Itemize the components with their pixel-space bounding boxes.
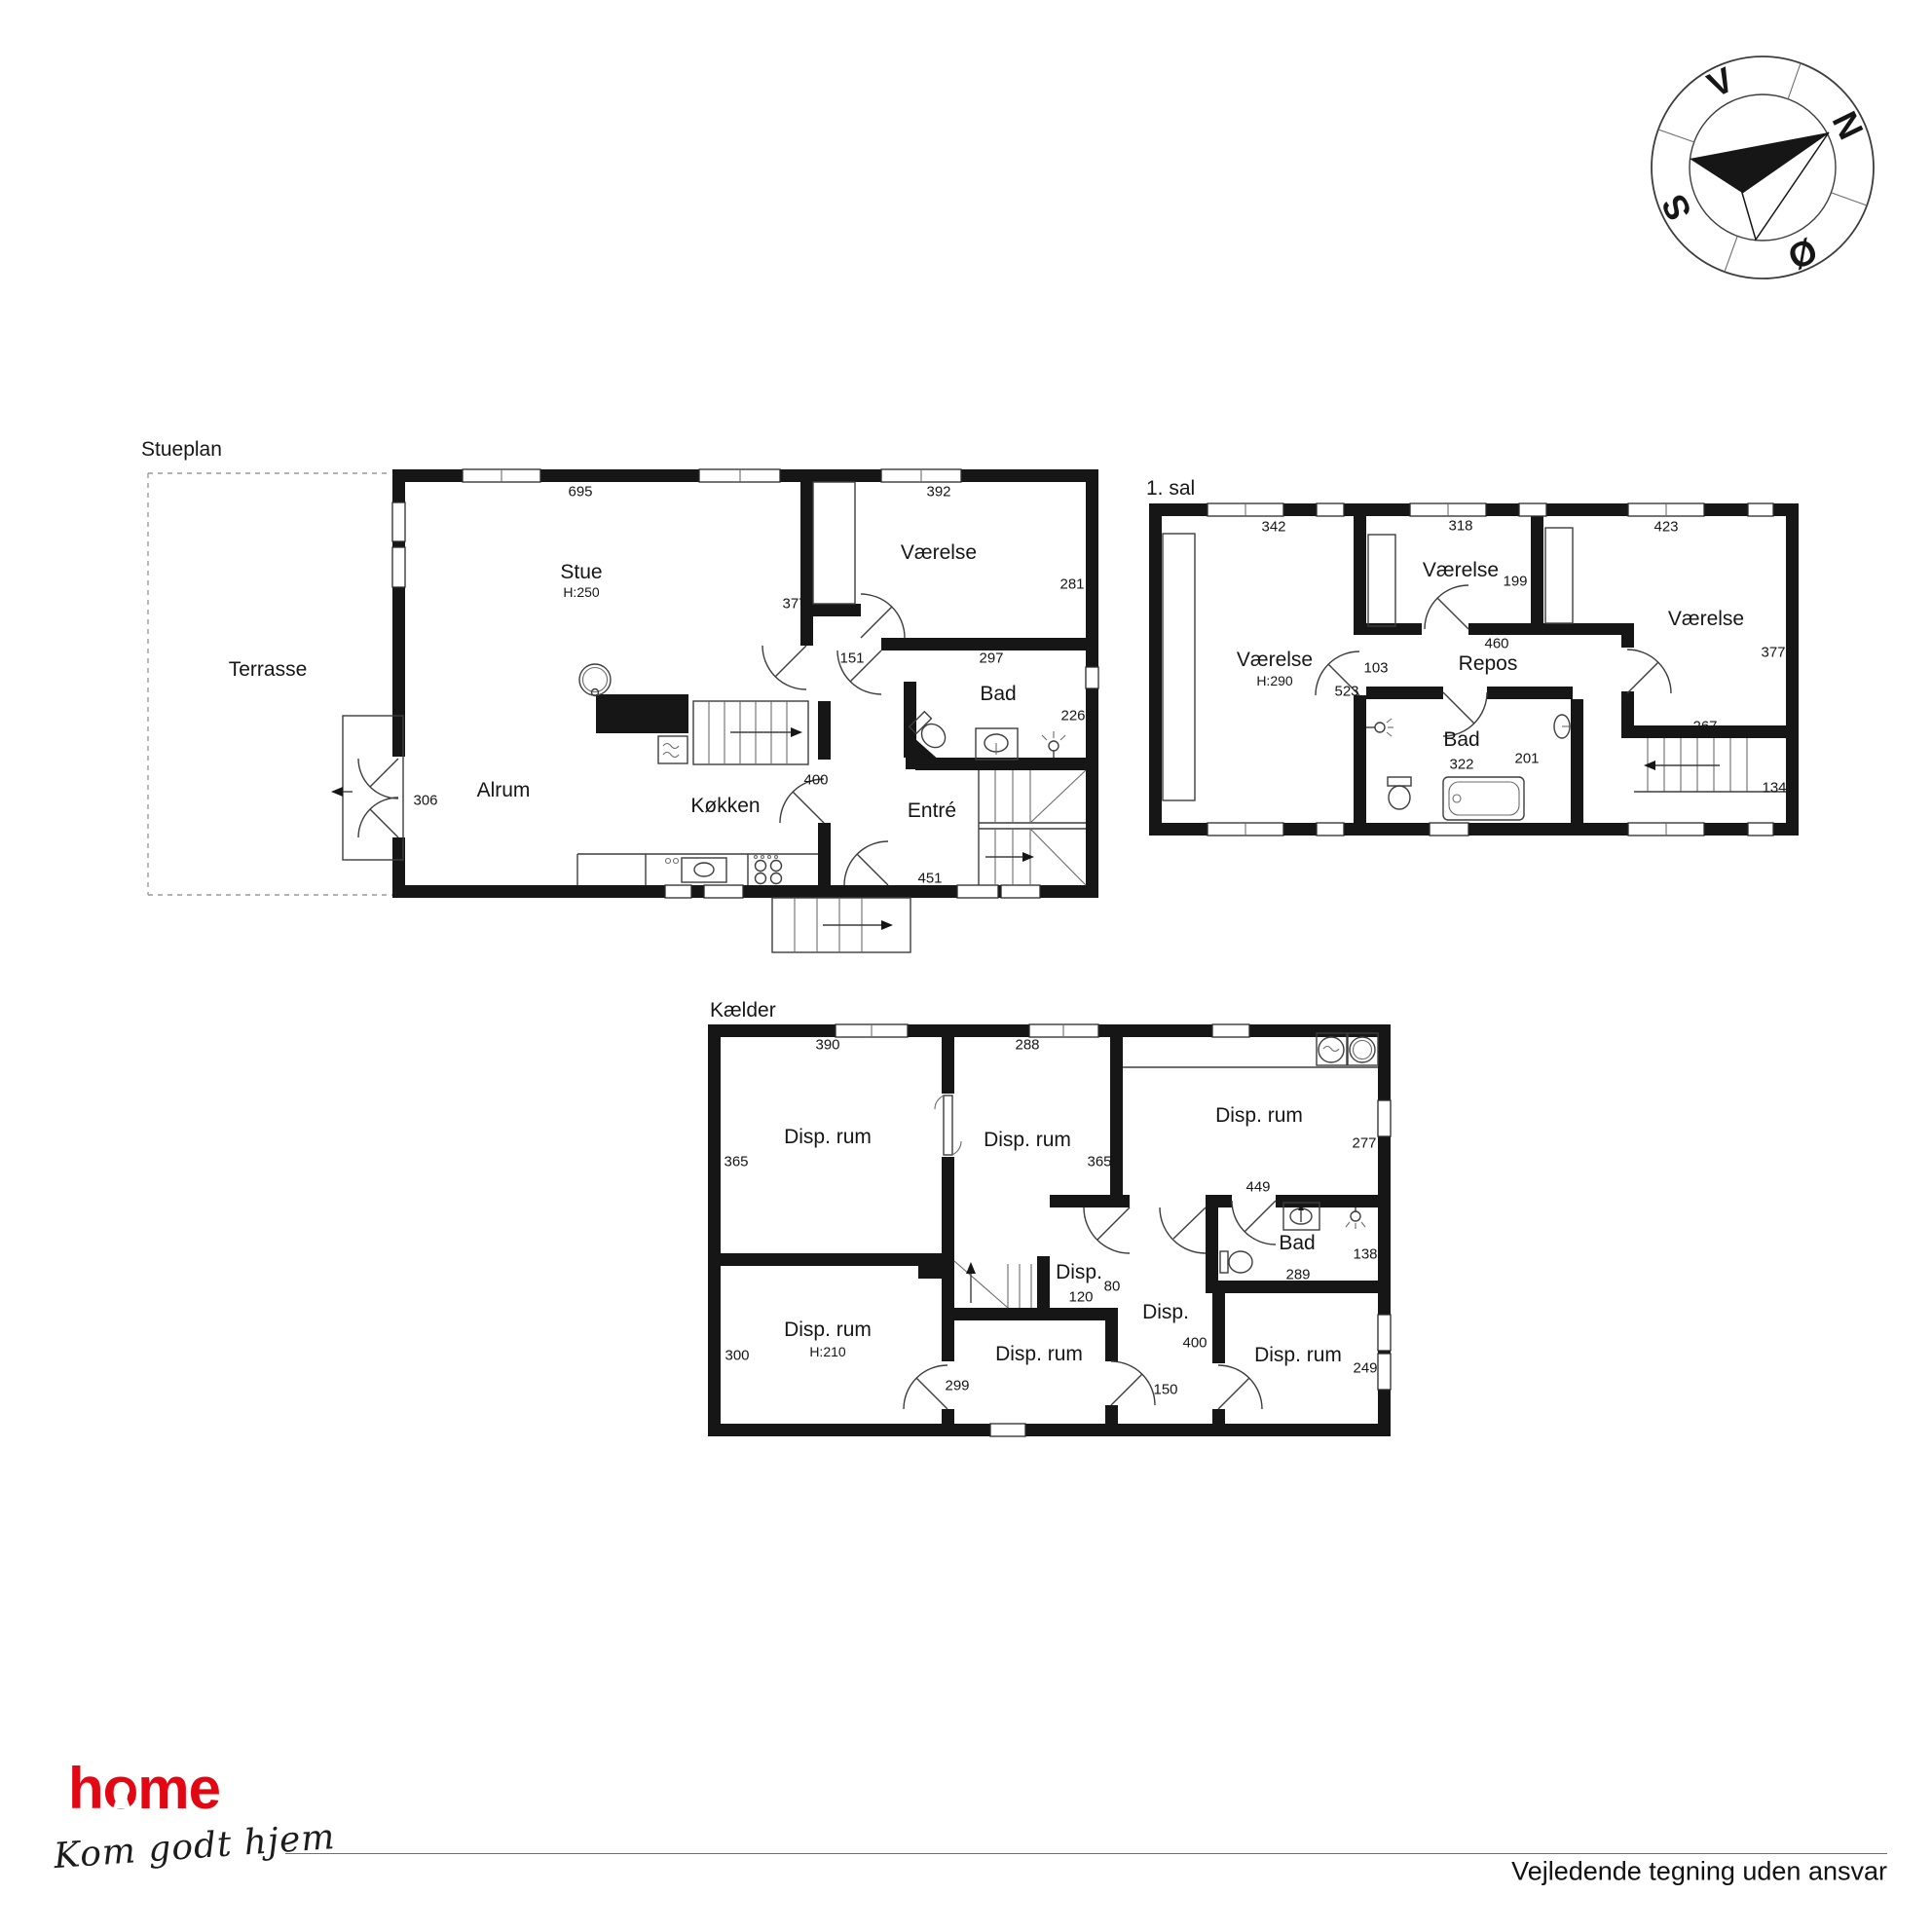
- dim-label: 392: [926, 484, 950, 501]
- room-label-disprum-tr: Disp. rum: [1215, 1104, 1303, 1128]
- dim-label: 322: [1449, 757, 1473, 773]
- stove-icon: [755, 856, 782, 884]
- dim-label: 377: [1761, 645, 1785, 661]
- room-label-koekken: Køkken: [690, 795, 760, 818]
- basement-stair: [954, 1261, 1031, 1308]
- home-logo: home: [68, 1756, 220, 1821]
- plan-title-1sal: 1. sal: [1146, 477, 1195, 501]
- kitchen-stair: [693, 701, 808, 764]
- dim-label: 134: [1762, 780, 1786, 797]
- lamp-icon: [1366, 719, 1393, 736]
- dim-label: 289: [1285, 1267, 1310, 1283]
- room-label-disprum-tm: Disp. rum: [984, 1129, 1071, 1152]
- laundry-appliances: [1123, 1033, 1378, 1067]
- room-label-bad-1sal: Bad: [1443, 728, 1479, 752]
- floorplan-page: { "footer": { "disclaimer": "Vejledende …: [0, 0, 1932, 1932]
- footer-divider: [285, 1853, 1887, 1854]
- dim-label: 277: [1352, 1135, 1376, 1152]
- dim-label: 103: [1363, 660, 1388, 677]
- plan-title-stueplan: Stueplan: [141, 438, 222, 462]
- room-label-repos: Repos: [1459, 652, 1518, 676]
- bathtub-icon: [1443, 777, 1524, 820]
- toilet-icon: [1388, 777, 1411, 809]
- room-label-terrasse: Terrasse: [229, 658, 308, 682]
- room-height-stue: H:250: [563, 584, 599, 600]
- dim-label: 201: [1514, 751, 1539, 767]
- sliding-door: [935, 1096, 961, 1155]
- floorplan-drawing: N V S Ø home: [0, 0, 1932, 1932]
- lamp-icon: [1042, 731, 1065, 758]
- wood-stove-icon: [579, 664, 611, 696]
- room-label-disprum-tl: Disp. rum: [784, 1126, 872, 1149]
- entrance-steps: [772, 898, 910, 952]
- compass-label-south: S: [1653, 189, 1699, 227]
- dim-label: 297: [979, 650, 1003, 667]
- dim-label: 267: [1692, 719, 1717, 735]
- room-label-bad-stueplan: Bad: [980, 683, 1016, 706]
- dim-label: 377: [782, 596, 806, 613]
- basement-plan: [708, 1024, 1391, 1436]
- plan-title-kaelder: Kælder: [710, 999, 776, 1022]
- dim-label: 151: [839, 650, 864, 667]
- dim-label: 342: [1261, 519, 1285, 536]
- room-label-disprum-bl: Disp. rum: [784, 1319, 872, 1342]
- dim-label: 281: [1059, 576, 1084, 593]
- closet-outline: [813, 482, 855, 604]
- room-label-bad-kaelder: Bad: [1279, 1232, 1315, 1255]
- room-label-alrum: Alrum: [477, 779, 531, 802]
- room-label-disprum-br: Disp. rum: [1254, 1344, 1342, 1367]
- compass-label-east: Ø: [1782, 230, 1824, 278]
- room-label-disp-small: Disp.: [1056, 1261, 1102, 1284]
- room-label-vaerelse-stueplan: Værelse: [901, 541, 977, 565]
- dim-label: 365: [1087, 1154, 1111, 1170]
- room-label-vaerelse-1sal-mid: Værelse: [1423, 559, 1499, 582]
- stueplan-doors: [762, 594, 905, 885]
- terrace-door: [331, 716, 403, 860]
- dim-label: 460: [1484, 636, 1508, 652]
- compass-label-north: N: [1825, 105, 1872, 145]
- dim-label: 449: [1245, 1179, 1270, 1196]
- stueplan-bath-fixtures: [910, 712, 1065, 760]
- dim-label: 80: [1104, 1279, 1121, 1295]
- dim-label: 523: [1334, 684, 1358, 700]
- dim-label: 423: [1653, 519, 1678, 536]
- dim-label: 451: [917, 871, 942, 887]
- room-label-vaerelse-1sal-right: Værelse: [1668, 608, 1744, 631]
- dim-label: 288: [1015, 1037, 1039, 1054]
- dim-label: 365: [724, 1154, 748, 1170]
- dim-label: 400: [1182, 1335, 1207, 1352]
- dim-label: 390: [815, 1037, 839, 1054]
- dim-label: 318: [1448, 518, 1472, 535]
- terrasse-outline: [148, 473, 392, 895]
- kitchen-counter: [577, 854, 818, 885]
- room-label-vaerelse-1sal-left: Værelse: [1237, 649, 1313, 672]
- dim-label: 199: [1503, 574, 1527, 590]
- dim-label: 299: [945, 1378, 969, 1394]
- room-label-disprum-bm: Disp. rum: [995, 1343, 1083, 1366]
- lamp-icon: [1346, 1207, 1365, 1229]
- dim-label: 300: [724, 1348, 749, 1364]
- room-height-disprum-bl: H:210: [809, 1344, 845, 1359]
- entre-stair: [979, 770, 1086, 885]
- compass-label-west: V: [1701, 59, 1740, 105]
- dim-label: 150: [1153, 1382, 1177, 1398]
- brand-wordmark: home: [68, 1756, 220, 1821]
- dryer-icon: [1348, 1033, 1378, 1065]
- dim-label: 120: [1068, 1289, 1093, 1306]
- room-label-disp-hall: Disp.: [1142, 1301, 1189, 1324]
- dishwasher-icon: [658, 736, 687, 763]
- dim-label: 249: [1353, 1360, 1377, 1377]
- dim-label: 695: [568, 484, 592, 501]
- room-label-entre: Entré: [908, 799, 956, 823]
- dim-label: 138: [1353, 1246, 1377, 1263]
- dim-label: 226: [1060, 708, 1085, 724]
- room-height-vaerelse-1sal: H:290: [1256, 673, 1292, 688]
- disclaimer-text: Vejledende tegning uden ansvar: [1511, 1857, 1887, 1887]
- sink-icon: [682, 858, 726, 882]
- toilet-icon: [1220, 1251, 1252, 1273]
- dim-label: 400: [803, 772, 828, 789]
- room-label-stue: Stue: [560, 561, 602, 584]
- dim-label: 306: [413, 793, 437, 809]
- compass-rose: N V S Ø: [1652, 56, 1874, 279]
